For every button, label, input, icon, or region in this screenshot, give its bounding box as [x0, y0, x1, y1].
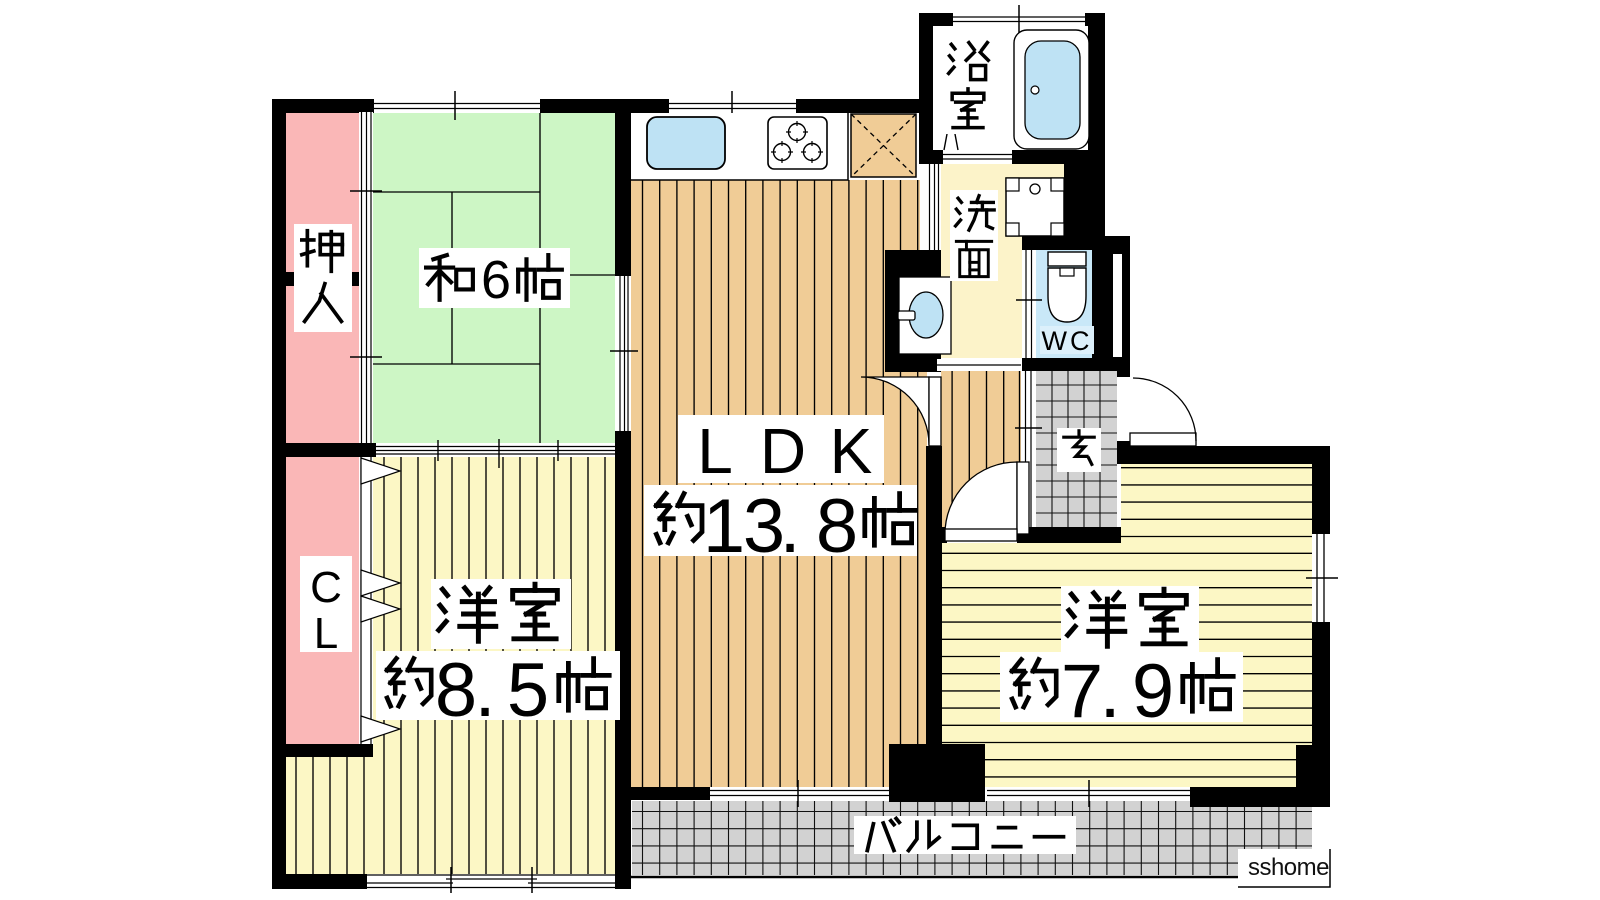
svg-text:C: C — [310, 563, 342, 612]
svg-text:sshome: sshome — [1248, 854, 1329, 881]
svg-text:9: 9 — [1132, 649, 1174, 734]
svg-text:8: 8 — [816, 484, 858, 569]
svg-text:.: . — [1099, 649, 1120, 734]
svg-text:8: 8 — [435, 648, 477, 733]
svg-text:7: 7 — [1061, 649, 1103, 734]
svg-text:1: 1 — [703, 484, 745, 569]
svg-text:WC: WC — [1042, 326, 1093, 356]
svg-text:5: 5 — [507, 648, 549, 733]
svg-text:.: . — [779, 484, 800, 569]
svg-text:L: L — [697, 415, 733, 487]
svg-text:.: . — [474, 648, 495, 733]
svg-text:K: K — [830, 415, 873, 487]
svg-text:L: L — [314, 609, 338, 658]
svg-text:6: 6 — [481, 250, 511, 310]
svg-text:D: D — [760, 415, 806, 487]
